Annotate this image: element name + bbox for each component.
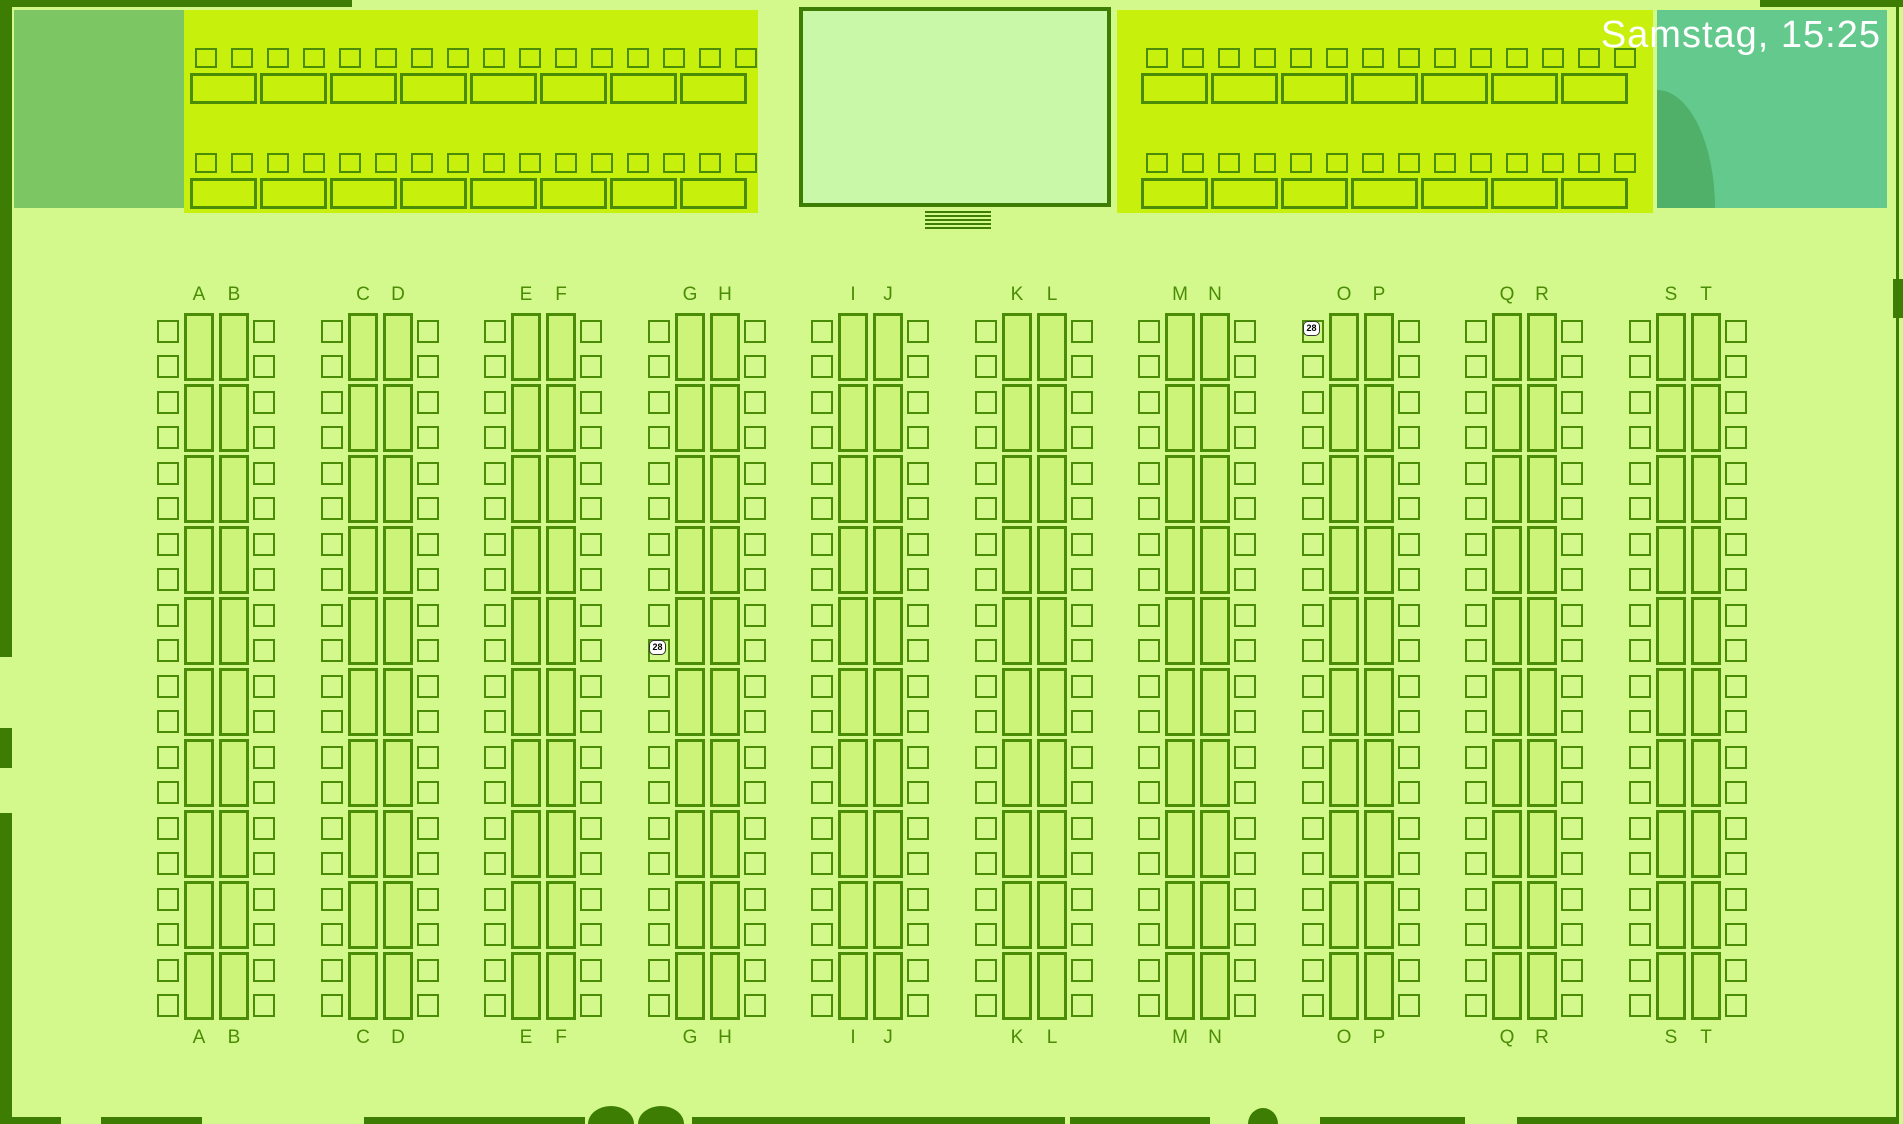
chair-K <box>975 355 997 378</box>
desk-J <box>873 313 903 381</box>
desk-E <box>511 810 541 878</box>
chair-O <box>1302 604 1324 627</box>
chair-R <box>1561 462 1583 485</box>
chair-Q <box>1465 675 1487 698</box>
clock-panel-shade <box>1657 90 1715 208</box>
chair-E <box>484 710 506 733</box>
chair-K <box>975 604 997 627</box>
desk-F <box>546 668 576 736</box>
column-label: R <box>1527 283 1557 307</box>
wall-left <box>0 7 12 657</box>
column-label: C <box>348 1026 378 1050</box>
top-left-section-desk <box>680 73 747 104</box>
top-right-section-chair <box>1218 153 1240 173</box>
chair-G <box>648 604 670 627</box>
desk-H <box>710 526 740 594</box>
desk-J <box>873 668 903 736</box>
desk-C <box>348 810 378 878</box>
chair-M <box>1138 639 1160 662</box>
top-left-section-chair <box>303 153 325 173</box>
chair-H <box>744 462 766 485</box>
chair-J <box>907 639 929 662</box>
desk-S <box>1656 313 1686 381</box>
chair-N <box>1234 391 1256 414</box>
chair-S <box>1629 746 1651 769</box>
chair-D <box>417 746 439 769</box>
top-left-section-chair <box>339 153 361 173</box>
chair-T <box>1725 959 1747 982</box>
chair-L <box>1071 781 1093 804</box>
chair-P <box>1398 391 1420 414</box>
chair-L <box>1071 923 1093 946</box>
desk-P <box>1364 313 1394 381</box>
desk-N <box>1200 526 1230 594</box>
chair-L <box>1071 639 1093 662</box>
chair-P <box>1398 994 1420 1017</box>
top-left-section-chair <box>231 48 253 68</box>
wall-left <box>0 813 12 1124</box>
chair-N <box>1234 710 1256 733</box>
chair-B <box>253 568 275 591</box>
desk-M <box>1165 952 1195 1020</box>
chair-E <box>484 462 506 485</box>
desk-N <box>1200 597 1230 665</box>
chair-R <box>1561 710 1583 733</box>
desk-Q <box>1492 881 1522 949</box>
desk-B <box>219 597 249 665</box>
desk-O <box>1329 881 1359 949</box>
chair-A <box>157 710 179 733</box>
chair-L <box>1071 533 1093 556</box>
top-right-section-chair <box>1470 153 1492 173</box>
chair-G <box>648 320 670 343</box>
chair-M <box>1138 746 1160 769</box>
chair-S <box>1629 355 1651 378</box>
chair-D <box>417 604 439 627</box>
chair-N <box>1234 994 1256 1017</box>
top-left-section-desk <box>610 178 677 209</box>
column-label: B <box>219 1026 249 1050</box>
desk-J <box>873 597 903 665</box>
desk-G <box>675 597 705 665</box>
chair-N <box>1234 746 1256 769</box>
chair-Q <box>1465 923 1487 946</box>
chair-P <box>1398 781 1420 804</box>
desk-G <box>675 952 705 1020</box>
chair-A <box>157 923 179 946</box>
chair-G <box>648 568 670 591</box>
desk-G <box>675 313 705 381</box>
chair-N <box>1234 320 1256 343</box>
desk-D <box>383 526 413 594</box>
chair-B <box>253 639 275 662</box>
chair-J <box>907 746 929 769</box>
desk-O <box>1329 455 1359 523</box>
column-label: E <box>511 1026 541 1050</box>
top-left-section-chair <box>699 48 721 68</box>
column-label: A <box>184 283 214 307</box>
chair-D <box>417 817 439 840</box>
chair-S <box>1629 923 1651 946</box>
desk-J <box>873 739 903 807</box>
column-label: I <box>838 1026 868 1050</box>
chair-K <box>975 888 997 911</box>
desk-T <box>1691 668 1721 736</box>
desk-S <box>1656 597 1686 665</box>
top-left-section-chair <box>555 153 577 173</box>
chair-B <box>253 746 275 769</box>
chair-M <box>1138 710 1160 733</box>
top-left-section-chair <box>411 153 433 173</box>
chair-F <box>580 888 602 911</box>
chair-K <box>975 817 997 840</box>
chair-D <box>417 923 439 946</box>
chair-F <box>580 497 602 520</box>
desk-F <box>546 597 576 665</box>
column-label: L <box>1037 1026 1067 1050</box>
chair-N <box>1234 675 1256 698</box>
top-right-section-desk <box>1141 178 1208 209</box>
desk-M <box>1165 739 1195 807</box>
top-left-section-desk <box>470 73 537 104</box>
desk-T <box>1691 526 1721 594</box>
chair-O <box>1302 568 1324 591</box>
desk-L <box>1037 313 1067 381</box>
wall-top <box>1760 0 1903 7</box>
chair-A <box>157 355 179 378</box>
chair-O <box>1302 746 1324 769</box>
chair-F <box>580 852 602 875</box>
chair-E <box>484 533 506 556</box>
column-label: C <box>348 283 378 307</box>
chair-K <box>975 781 997 804</box>
desk-P <box>1364 384 1394 452</box>
desk-O <box>1329 313 1359 381</box>
chair-H <box>744 533 766 556</box>
chair-F <box>580 781 602 804</box>
chair-C <box>321 391 343 414</box>
desk-I <box>838 313 868 381</box>
chair-H <box>744 675 766 698</box>
chair-B <box>253 355 275 378</box>
chair-O <box>1302 355 1324 378</box>
chair-L <box>1071 710 1093 733</box>
top-left-section-desk <box>330 178 397 209</box>
desk-T <box>1691 952 1721 1020</box>
top-right-section-chair <box>1182 153 1204 173</box>
desk-T <box>1691 313 1721 381</box>
chair-N <box>1234 852 1256 875</box>
chair-A <box>157 497 179 520</box>
desk-B <box>219 739 249 807</box>
chair-D <box>417 781 439 804</box>
top-right-section-desk <box>1561 178 1628 209</box>
chair-E <box>484 888 506 911</box>
chair-P <box>1398 746 1420 769</box>
chair-F <box>580 426 602 449</box>
column-label: L <box>1037 283 1067 307</box>
chair-O <box>1302 710 1324 733</box>
desk-K <box>1002 810 1032 878</box>
chair-I <box>811 568 833 591</box>
chair-K <box>975 497 997 520</box>
seat-number-badge: 28 <box>1303 321 1320 336</box>
desk-B <box>219 952 249 1020</box>
desk-T <box>1691 810 1721 878</box>
desk-J <box>873 952 903 1020</box>
chair-I <box>811 710 833 733</box>
desk-R <box>1527 739 1557 807</box>
desk-A <box>184 597 214 665</box>
chair-L <box>1071 675 1093 698</box>
chair-T <box>1725 746 1747 769</box>
chair-P <box>1398 355 1420 378</box>
stairs-icon <box>925 219 991 221</box>
chair-L <box>1071 888 1093 911</box>
chair-E <box>484 320 506 343</box>
chair-O <box>1302 994 1324 1017</box>
chair-E <box>484 994 506 1017</box>
chair-R <box>1561 533 1583 556</box>
desk-K <box>1002 526 1032 594</box>
chair-R <box>1561 355 1583 378</box>
chair-T <box>1725 888 1747 911</box>
chair-G <box>648 426 670 449</box>
chair-P <box>1398 320 1420 343</box>
wall-top <box>0 0 352 7</box>
top-right-section-desk <box>1351 178 1418 209</box>
desk-C <box>348 952 378 1020</box>
desk-S <box>1656 739 1686 807</box>
column-label: S <box>1656 283 1686 307</box>
desk-L <box>1037 810 1067 878</box>
desk-R <box>1527 597 1557 665</box>
chair-J <box>907 426 929 449</box>
desk-R <box>1527 313 1557 381</box>
desk-B <box>219 881 249 949</box>
desk-S <box>1656 810 1686 878</box>
stairs-icon <box>925 223 991 225</box>
top-right-section-chair <box>1434 153 1456 173</box>
chair-Q <box>1465 462 1487 485</box>
chair-C <box>321 639 343 662</box>
chair-N <box>1234 923 1256 946</box>
chair-R <box>1561 320 1583 343</box>
chair-F <box>580 675 602 698</box>
desk-E <box>511 881 541 949</box>
chair-D <box>417 710 439 733</box>
column-label: F <box>546 283 576 307</box>
chair-J <box>907 994 929 1017</box>
chair-R <box>1561 781 1583 804</box>
desk-R <box>1527 810 1557 878</box>
top-right-section-chair <box>1506 153 1528 173</box>
chair-F <box>580 462 602 485</box>
desk-F <box>546 526 576 594</box>
desk-N <box>1200 881 1230 949</box>
desk-E <box>511 455 541 523</box>
chair-A <box>157 888 179 911</box>
desk-L <box>1037 668 1067 736</box>
chair-R <box>1561 497 1583 520</box>
chair-T <box>1725 320 1747 343</box>
chair-F <box>580 817 602 840</box>
desk-O <box>1329 668 1359 736</box>
chair-M <box>1138 817 1160 840</box>
chair-D <box>417 568 439 591</box>
chair-L <box>1071 746 1093 769</box>
chair-J <box>907 604 929 627</box>
chair-J <box>907 355 929 378</box>
chair-S <box>1629 710 1651 733</box>
chair-K <box>975 391 997 414</box>
desk-K <box>1002 597 1032 665</box>
desk-T <box>1691 455 1721 523</box>
column-label: J <box>873 1026 903 1050</box>
desk-J <box>873 455 903 523</box>
chair-N <box>1234 497 1256 520</box>
desk-P <box>1364 739 1394 807</box>
top-left-section-chair <box>735 48 757 68</box>
column-pair-OP: OPOP <box>1302 283 1420 1053</box>
top-right-section-chair <box>1578 153 1600 173</box>
wall-bottom <box>1070 1117 1210 1124</box>
top-right-section-chair <box>1542 153 1564 173</box>
chair-T <box>1725 710 1747 733</box>
chair-D <box>417 852 439 875</box>
desk-J <box>873 810 903 878</box>
chair-A <box>157 639 179 662</box>
wall-bottom <box>364 1117 585 1124</box>
chair-A <box>157 746 179 769</box>
chair-H <box>744 746 766 769</box>
top-left-section-chair <box>663 153 685 173</box>
top-right-section-chair <box>1362 153 1384 173</box>
chair-H <box>744 994 766 1017</box>
desk-T <box>1691 384 1721 452</box>
top-right-section-chair <box>1506 48 1528 68</box>
chair-L <box>1071 604 1093 627</box>
chair-I <box>811 320 833 343</box>
chair-Q <box>1465 746 1487 769</box>
chair-O <box>1302 923 1324 946</box>
column-label: Q <box>1492 283 1522 307</box>
chair-O <box>1302 852 1324 875</box>
chair-G <box>648 781 670 804</box>
top-left-section-desk <box>400 178 467 209</box>
chair-O <box>1302 391 1324 414</box>
chair-B <box>253 391 275 414</box>
chair-K <box>975 426 997 449</box>
chair-A <box>157 426 179 449</box>
column-label: P <box>1364 283 1394 307</box>
column-label: N <box>1200 1026 1230 1050</box>
top-right-section-chair <box>1326 153 1348 173</box>
column-pair-QR: QRQR <box>1465 283 1583 1053</box>
top-left-section-chair <box>411 48 433 68</box>
chair-O <box>1302 426 1324 449</box>
column-label: O <box>1329 1026 1359 1050</box>
top-left-section-desk <box>400 73 467 104</box>
chair-K <box>975 675 997 698</box>
chair-L <box>1071 497 1093 520</box>
desk-Q <box>1492 668 1522 736</box>
column-pair-AB: ABAB <box>157 283 275 1053</box>
chair-Q <box>1465 710 1487 733</box>
chair-Q <box>1465 497 1487 520</box>
chair-K <box>975 923 997 946</box>
desk-K <box>1002 668 1032 736</box>
chair-B <box>253 852 275 875</box>
chair-K <box>975 533 997 556</box>
desk-T <box>1691 597 1721 665</box>
top-left-section-chair <box>195 48 217 68</box>
chair-F <box>580 355 602 378</box>
top-right-section-chair <box>1182 48 1204 68</box>
chair-I <box>811 923 833 946</box>
chair-E <box>484 923 506 946</box>
desk-K <box>1002 384 1032 452</box>
chair-F <box>580 391 602 414</box>
desk-A <box>184 881 214 949</box>
desk-I <box>838 739 868 807</box>
chair-L <box>1071 462 1093 485</box>
column-label: B <box>219 283 249 307</box>
chair-D <box>417 462 439 485</box>
chair-G <box>648 888 670 911</box>
desk-Q <box>1492 810 1522 878</box>
central-entrance-box <box>799 7 1111 207</box>
desk-M <box>1165 810 1195 878</box>
column-label: F <box>546 1026 576 1050</box>
chair-K <box>975 994 997 1017</box>
desk-Q <box>1492 313 1522 381</box>
top-right-section-chair <box>1290 48 1312 68</box>
desk-I <box>838 597 868 665</box>
chair-J <box>907 320 929 343</box>
desk-C <box>348 668 378 736</box>
chair-O <box>1302 817 1324 840</box>
chair-G <box>648 710 670 733</box>
chair-P <box>1398 852 1420 875</box>
desk-C <box>348 313 378 381</box>
chair-O <box>1302 781 1324 804</box>
chair-E <box>484 639 506 662</box>
chair-T <box>1725 604 1747 627</box>
wall-bottom <box>1320 1117 1465 1124</box>
desk-H <box>710 881 740 949</box>
chair-A <box>157 959 179 982</box>
chair-T <box>1725 852 1747 875</box>
chair-R <box>1561 817 1583 840</box>
chair-B <box>253 533 275 556</box>
desk-A <box>184 739 214 807</box>
top-left-section-chair <box>447 48 469 68</box>
chair-H <box>744 426 766 449</box>
chair-T <box>1725 675 1747 698</box>
wall-bottom <box>101 1117 202 1124</box>
chair-I <box>811 675 833 698</box>
column-label: N <box>1200 283 1230 307</box>
chair-M <box>1138 355 1160 378</box>
desk-C <box>348 455 378 523</box>
desk-A <box>184 810 214 878</box>
chair-B <box>253 497 275 520</box>
column-label: M <box>1165 283 1195 307</box>
column-pair-KL: KLKL <box>975 283 1093 1053</box>
chair-M <box>1138 568 1160 591</box>
chair-H <box>744 781 766 804</box>
